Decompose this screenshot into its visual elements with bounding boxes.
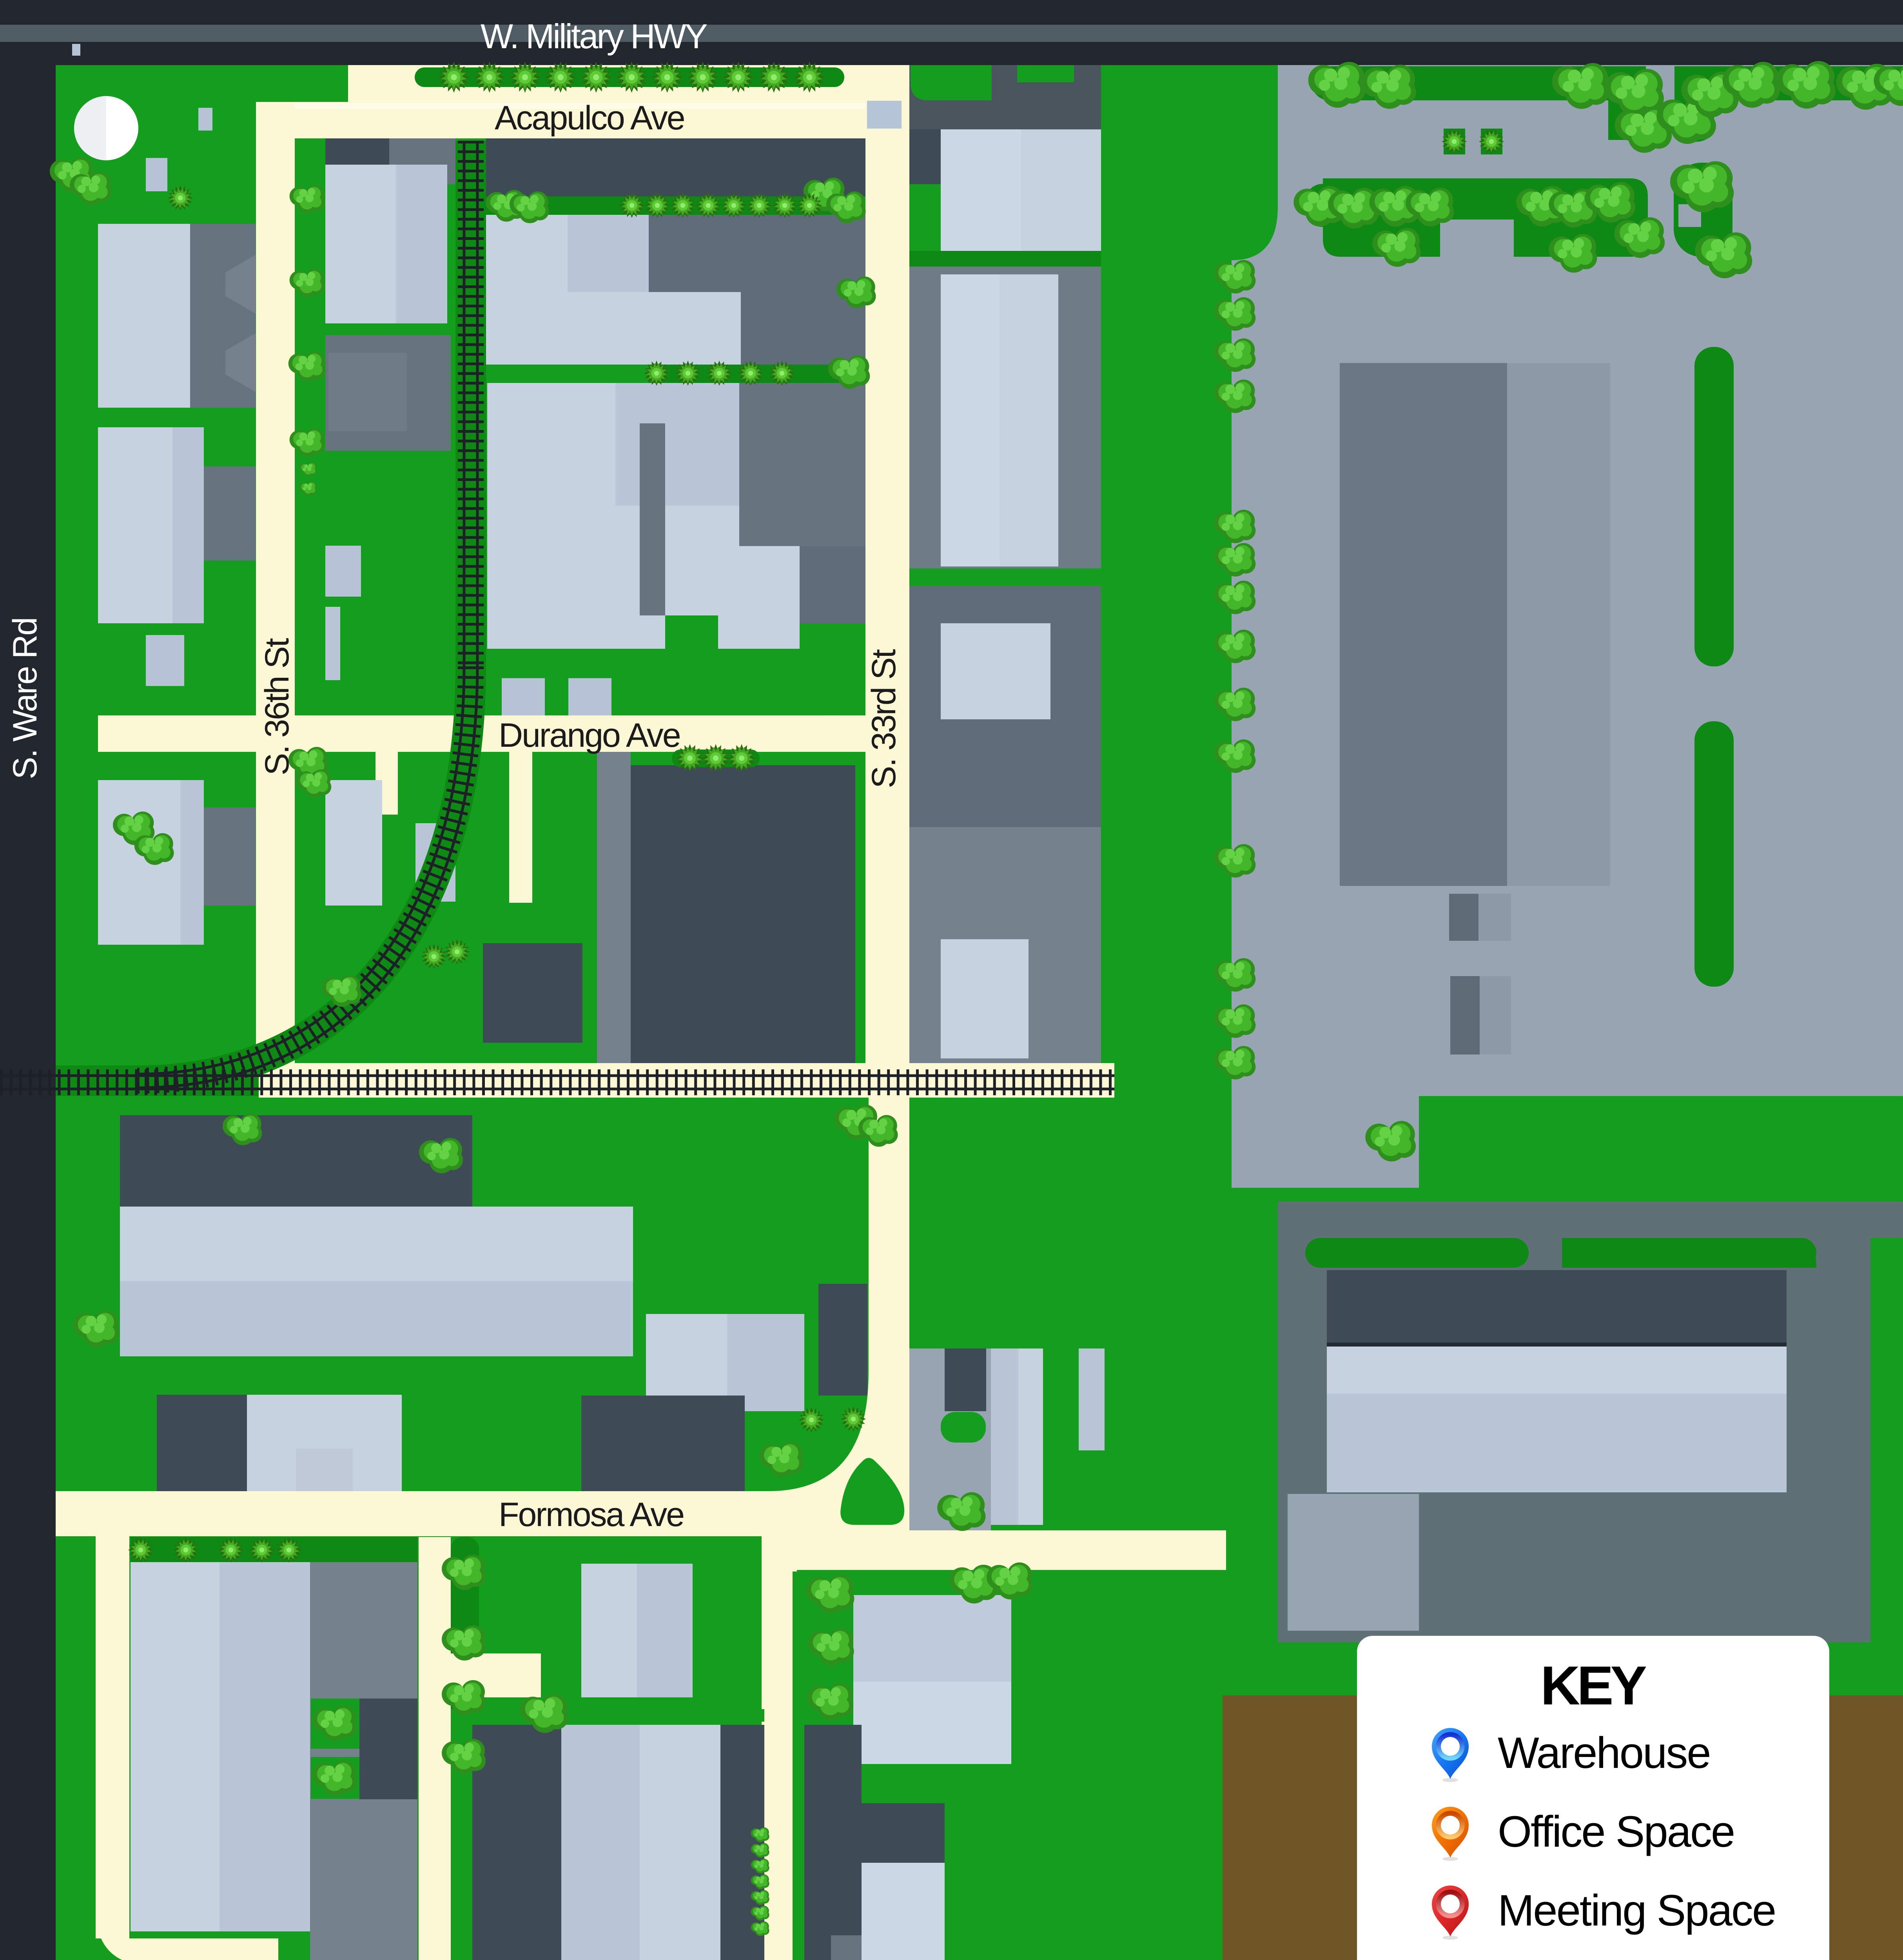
svg-text:Warehouse: Warehouse xyxy=(1498,1728,1710,1777)
svg-text:W. Military HWY: W. Military HWY xyxy=(481,17,707,56)
svg-text:S. 33rd St: S. 33rd St xyxy=(865,649,903,788)
svg-text:KEY: KEY xyxy=(1540,1655,1646,1716)
svg-text:Durango Ave: Durango Ave xyxy=(499,717,680,754)
svg-text:S. Ware Rd: S. Ware Rd xyxy=(6,618,44,779)
svg-text:Office Space: Office Space xyxy=(1498,1807,1734,1856)
svg-text:Formosa Ave: Formosa Ave xyxy=(499,1496,684,1534)
svg-text:Acapulco Ave: Acapulco Ave xyxy=(495,99,684,137)
svg-text:Meeting Space: Meeting Space xyxy=(1498,1886,1775,1935)
